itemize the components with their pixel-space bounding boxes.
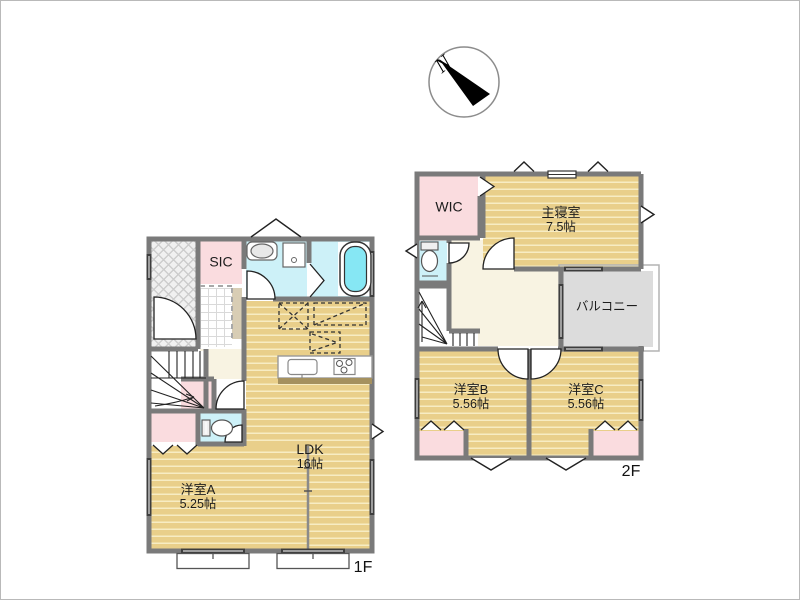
vanity-sink bbox=[247, 242, 277, 260]
room-b-door bbox=[498, 349, 528, 379]
bath-folding-door bbox=[310, 264, 324, 297]
hall-ldk-door bbox=[216, 381, 244, 409]
label-room-a: 洋室A 5.25帖 bbox=[180, 482, 217, 512]
kitchen-appliance-spaces bbox=[279, 303, 366, 353]
toilet-2f-door bbox=[449, 243, 469, 263]
closet-b-folding-door bbox=[421, 421, 464, 430]
room-c-door bbox=[531, 349, 561, 379]
balcony-side-window bbox=[559, 284, 564, 339]
label-floor-1f: 1F bbox=[354, 559, 373, 577]
label-sic: SIC bbox=[209, 255, 232, 270]
master-bedroom-door bbox=[483, 238, 514, 269]
walls-2f bbox=[415, 172, 645, 461]
plan-linework bbox=[1, 1, 799, 599]
room-c-balcony-window bbox=[564, 347, 603, 352]
wic-folding-door bbox=[480, 177, 494, 196]
window bbox=[639, 379, 644, 421]
balcony-door-window bbox=[564, 267, 603, 272]
ldk-size: 16帖 bbox=[296, 457, 323, 472]
label-wic: WIC bbox=[435, 200, 462, 215]
sic-open-border bbox=[200, 286, 232, 339]
label-balcony: バルコニー bbox=[576, 300, 638, 315]
compass: N bbox=[421, 39, 511, 129]
room-b-size: 5.56帖 bbox=[453, 397, 490, 412]
ldk-name: LDK bbox=[296, 441, 323, 457]
window bbox=[415, 378, 420, 419]
stairs-2f bbox=[418, 292, 474, 346]
washing-machine-pan bbox=[283, 243, 305, 267]
room-c-size: 5.56帖 bbox=[568, 397, 605, 412]
closet-a-folding-door bbox=[153, 445, 197, 454]
window bbox=[370, 459, 375, 515]
closet-c-folding-door bbox=[595, 421, 637, 430]
label-ldk: LDK 16帖 bbox=[296, 442, 323, 472]
floor-plan-page: N SIC 洋室A 5.25帖 LDK 16帖 1F WIC 主寝室 7.5帖 … bbox=[0, 0, 800, 600]
label-floor-2f: 2F bbox=[622, 463, 641, 481]
toilet-2f bbox=[421, 242, 438, 276]
master-size: 7.5帖 bbox=[541, 220, 580, 235]
master-name: 主寝室 bbox=[541, 205, 580, 220]
window bbox=[181, 549, 245, 554]
label-room-b: 洋室B 5.56帖 bbox=[453, 382, 490, 412]
room-c-name: 洋室C bbox=[568, 382, 603, 397]
room-b-name: 洋室B bbox=[454, 382, 489, 397]
label-room-c: 洋室C 5.56帖 bbox=[568, 382, 605, 412]
entrance-door bbox=[154, 297, 196, 339]
window bbox=[281, 549, 345, 554]
window bbox=[147, 458, 152, 516]
top-small-window bbox=[548, 171, 576, 178]
room-a-name: 洋室A bbox=[181, 482, 216, 497]
room-a-size: 5.25帖 bbox=[180, 497, 217, 512]
window-shutter-boxes bbox=[177, 554, 349, 569]
window bbox=[147, 254, 152, 280]
kitchen-counter bbox=[278, 356, 372, 384]
label-master-bedroom: 主寝室 7.5帖 bbox=[541, 205, 580, 235]
toilet-1f bbox=[202, 420, 233, 436]
washroom-door bbox=[247, 271, 275, 299]
bathtub bbox=[340, 242, 371, 296]
